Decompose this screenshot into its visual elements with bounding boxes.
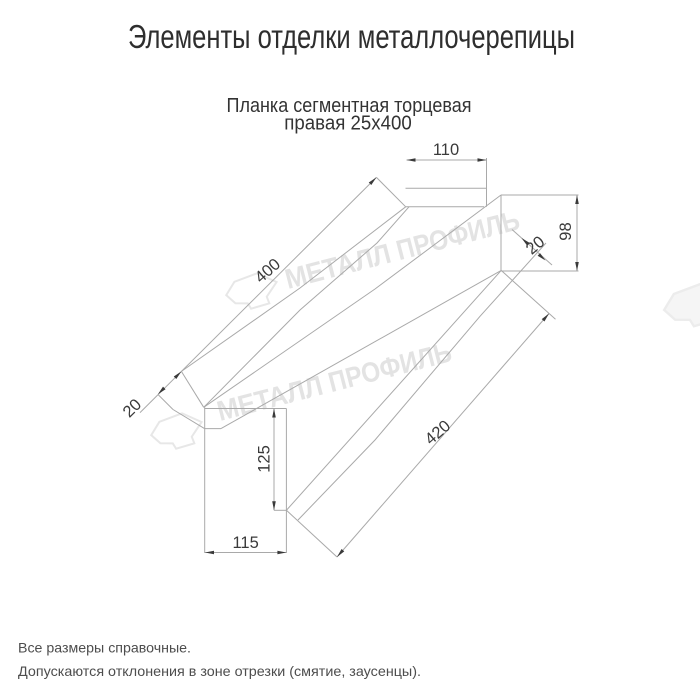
svg-text:110: 110	[433, 141, 459, 159]
svg-text:МЕТАЛЛ: МЕТАЛЛ	[282, 238, 394, 295]
svg-text:Все размеры справочные.: Все размеры справочные.	[18, 640, 191, 656]
svg-text:20: 20	[523, 233, 549, 259]
svg-text:115: 115	[232, 534, 258, 552]
svg-text:ПРОФИЛЬ: ПРОФИЛЬ	[393, 204, 523, 266]
svg-text:ПРОФИЛЬ: ПРОФИЛЬ	[325, 336, 455, 398]
svg-text:Элементы отделки металлочерепи: Элементы отделки металлочерепицы	[128, 18, 575, 55]
svg-text:420: 420	[422, 417, 455, 449]
svg-text:20: 20	[119, 396, 145, 422]
svg-text:правая 25х400: правая 25х400	[284, 113, 412, 135]
svg-text:400: 400	[252, 255, 285, 287]
svg-text:125: 125	[256, 445, 274, 473]
svg-text:Допускаются отклонения в зоне: Допускаются отклонения в зоне отрезки (с…	[18, 663, 421, 679]
svg-text:98: 98	[557, 222, 575, 240]
